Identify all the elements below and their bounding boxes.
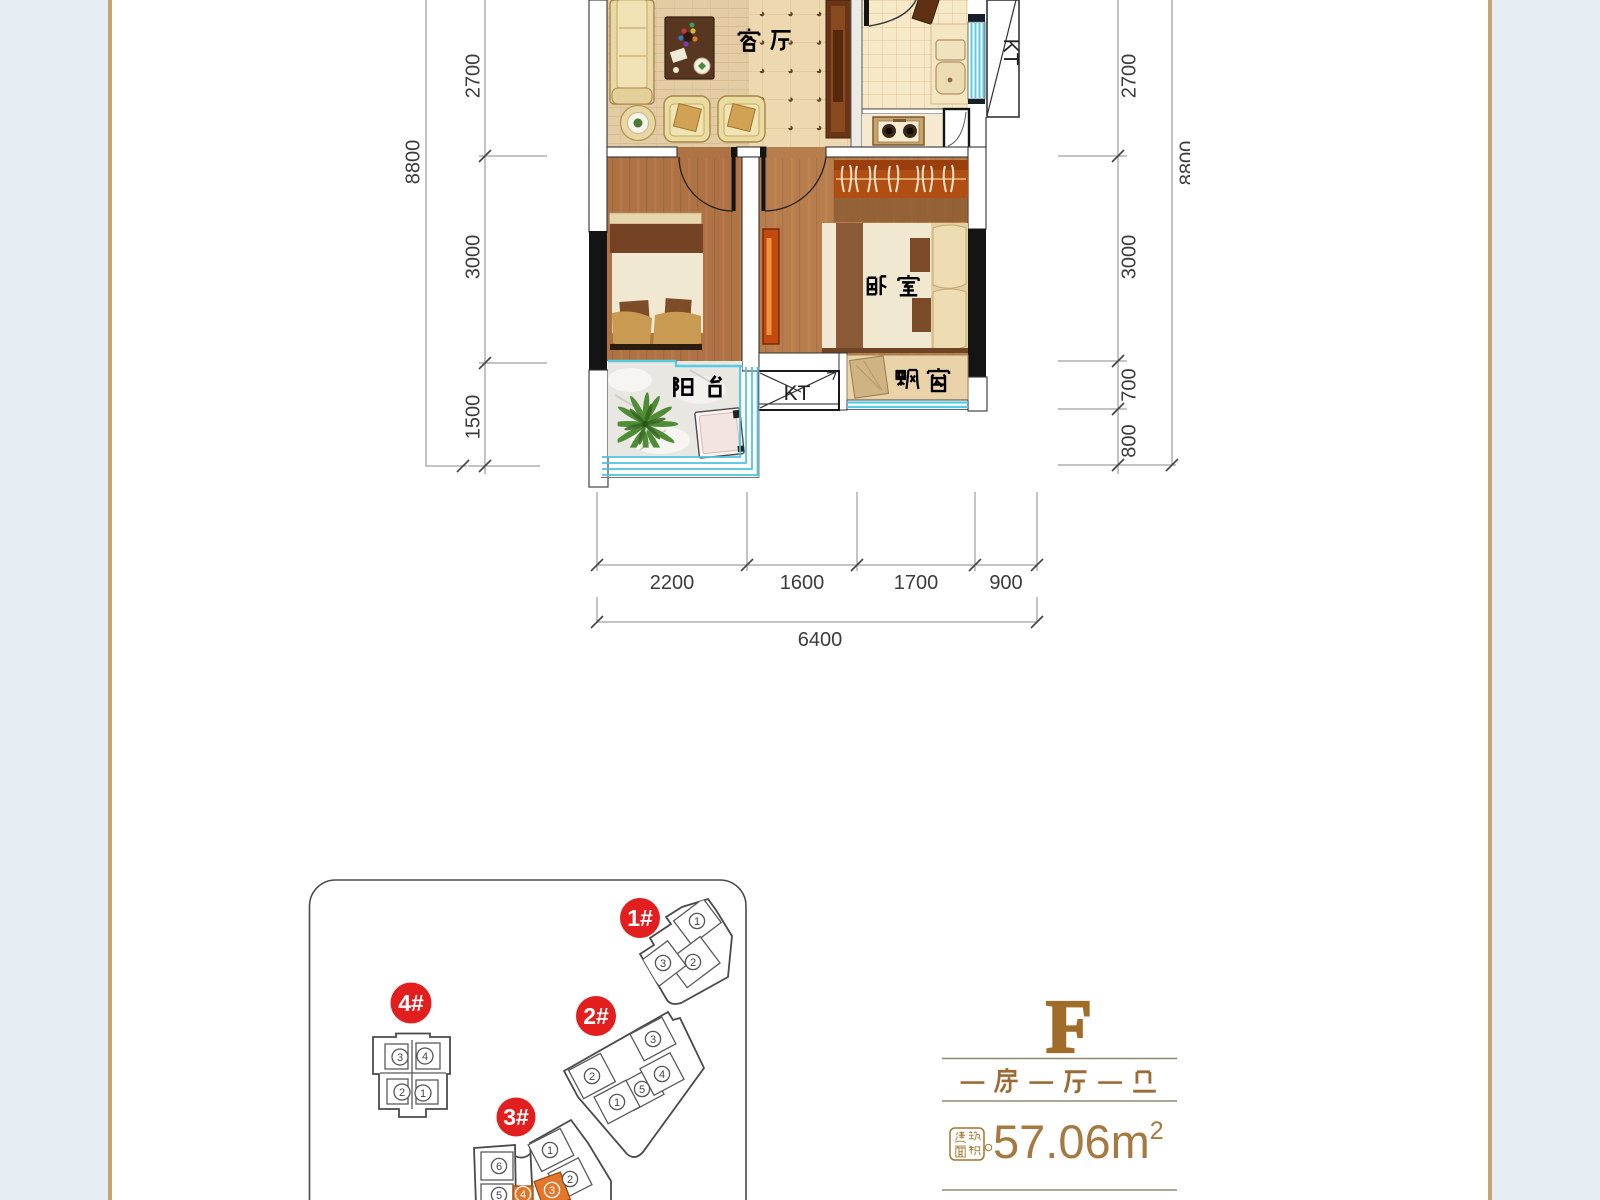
svg-text:5: 5 — [639, 1084, 645, 1096]
svg-text:1500: 1500 — [462, 395, 484, 440]
svg-text:6400: 6400 — [798, 629, 843, 651]
svg-text:1700: 1700 — [894, 572, 939, 594]
svg-text:3000: 3000 — [1118, 235, 1140, 280]
svg-text:3#: 3# — [503, 1104, 529, 1130]
svg-text:6: 6 — [496, 1161, 502, 1173]
svg-text:4: 4 — [659, 1069, 665, 1081]
svg-text:KT: KT — [784, 382, 811, 405]
svg-text:1#: 1# — [627, 905, 653, 931]
svg-text:2: 2 — [690, 957, 696, 969]
svg-text:2700: 2700 — [1118, 54, 1140, 99]
svg-text:700: 700 — [1118, 368, 1140, 401]
svg-text:3: 3 — [660, 958, 666, 970]
svg-text:800: 800 — [1118, 424, 1140, 457]
svg-text:4: 4 — [520, 1189, 526, 1200]
svg-text:2200: 2200 — [650, 572, 695, 594]
svg-text:3: 3 — [650, 1034, 656, 1046]
svg-text:5: 5 — [496, 1190, 502, 1200]
svg-text:KT: KT — [999, 39, 1022, 66]
svg-text:1600: 1600 — [780, 572, 825, 594]
svg-text:1: 1 — [694, 916, 700, 928]
svg-text:8800: 8800 — [1176, 141, 1190, 186]
svg-text:2: 2 — [567, 1174, 573, 1186]
svg-text:4: 4 — [422, 1051, 428, 1063]
svg-text:1: 1 — [614, 1097, 620, 1109]
svg-text:57.06m2: 57.06m2 — [993, 1115, 1164, 1168]
svg-text:1: 1 — [420, 1088, 426, 1100]
svg-text:2: 2 — [589, 1071, 595, 1083]
svg-text:2: 2 — [399, 1087, 405, 1099]
svg-text:1: 1 — [547, 1145, 553, 1157]
svg-text:2#: 2# — [583, 1003, 609, 1029]
svg-text:900: 900 — [989, 572, 1022, 594]
svg-text:F: F — [1046, 985, 1092, 1069]
svg-text:2700: 2700 — [462, 54, 484, 99]
svg-text:3: 3 — [549, 1185, 555, 1197]
svg-text:3: 3 — [397, 1052, 403, 1064]
svg-text:3000: 3000 — [462, 235, 484, 280]
svg-text:8800: 8800 — [402, 140, 424, 185]
svg-text:4#: 4# — [398, 990, 424, 1016]
